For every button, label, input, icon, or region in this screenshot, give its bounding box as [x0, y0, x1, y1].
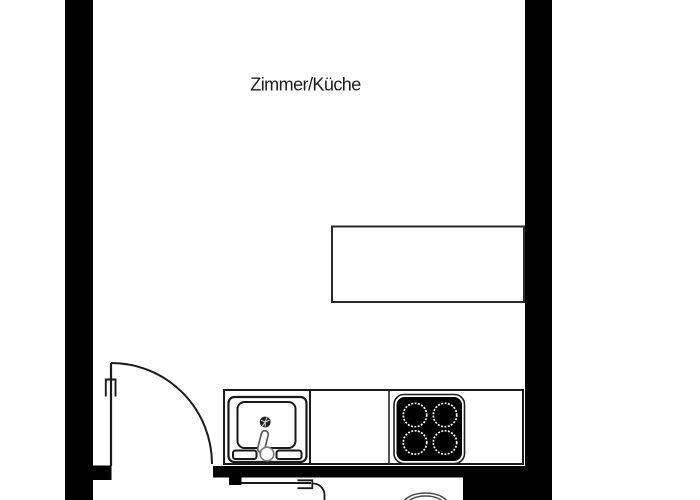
svg-text:Zimmer/Küche: Zimmer/Küche: [250, 75, 361, 95]
